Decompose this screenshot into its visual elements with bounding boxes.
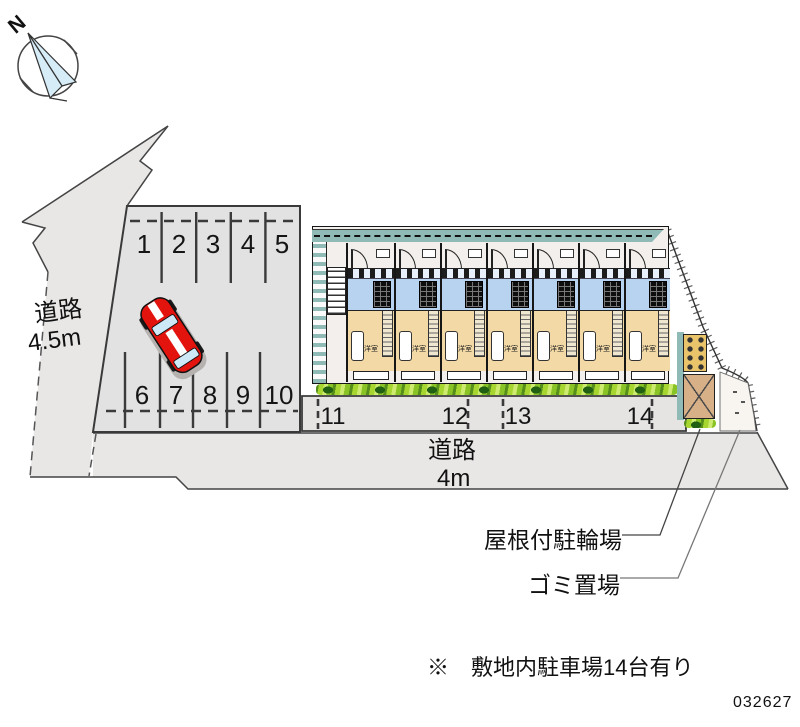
apartment-building: 洋室 洋室 洋室 洋室 xyxy=(312,226,670,384)
unit-kitchen-bath xyxy=(348,268,394,310)
apartment-unit: 洋室 xyxy=(578,243,624,382)
room-label: 洋室 xyxy=(550,344,564,354)
unit-balcony xyxy=(585,371,619,380)
unit-kitchen-bath xyxy=(534,268,578,310)
kitchen-counter xyxy=(396,269,440,279)
compass-icon: N xyxy=(4,11,78,101)
parking-space-number: 5 xyxy=(275,229,289,259)
unit-entrance xyxy=(626,243,670,268)
gravel-dot xyxy=(733,391,737,393)
entry-window xyxy=(514,249,528,258)
hedge xyxy=(316,384,678,395)
unit-living-room: 洋室 xyxy=(534,310,578,371)
parking-space-number: 8 xyxy=(203,380,217,410)
unit-stairs xyxy=(612,311,623,357)
room-label: 洋室 xyxy=(458,344,472,354)
unit-kitchen-bath xyxy=(396,268,440,310)
staircase xyxy=(327,267,346,315)
road-width: 4m xyxy=(437,465,476,493)
door-arc-icon xyxy=(583,249,600,269)
entry-window xyxy=(606,249,620,258)
parking-space-number: 6 xyxy=(135,380,149,410)
parking-space-number: 11 xyxy=(321,403,346,430)
room-label: 洋室 xyxy=(596,344,610,354)
apartment-unit: 洋室 xyxy=(486,243,532,382)
compass-base-line xyxy=(50,98,67,101)
road-label-bottom: 道路 4m xyxy=(428,437,476,492)
door-arc-icon xyxy=(351,249,368,269)
kitchen-counter xyxy=(534,269,578,279)
apartment-unit: 洋室 xyxy=(394,243,440,382)
room-label: 洋室 xyxy=(642,344,656,354)
building-body: 洋室 洋室 洋室 洋室 xyxy=(312,226,669,384)
entry-window xyxy=(422,249,436,258)
street-parking-strip: 11 12 13 14 xyxy=(302,396,686,431)
unit-bath-block xyxy=(557,281,575,308)
unit-entrance xyxy=(534,243,578,268)
parking-space-number: 14 xyxy=(627,403,654,430)
compass-tick-ne xyxy=(64,40,77,54)
unit-entrance xyxy=(580,243,624,268)
table-chairs xyxy=(537,331,550,361)
parking-space-number: 3 xyxy=(206,229,220,259)
parking-count-note: ※ 敷地内駐車場14台有り xyxy=(427,650,693,682)
garbage-area-outline xyxy=(720,372,756,431)
bicycle-rack xyxy=(683,334,707,372)
apartment-unit: 洋室 xyxy=(348,243,394,382)
unit-bath-block xyxy=(373,281,391,308)
units-row: 洋室 洋室 洋室 洋室 xyxy=(346,243,670,382)
label-bicycle-parking: 屋根付駐輪場 xyxy=(467,521,622,555)
parking-space-number: 10 xyxy=(265,380,294,410)
unit-kitchen-bath xyxy=(580,268,624,310)
table-chairs xyxy=(351,331,364,361)
room-label: 洋室 xyxy=(412,344,426,354)
parking-lot: 1 2 3 4 5 6 7 8 9 10 xyxy=(93,206,300,432)
unit-living-room: 洋室 xyxy=(348,310,394,371)
parking-space-number: 1 xyxy=(137,229,151,259)
unit-stairs xyxy=(658,311,669,357)
table-chairs xyxy=(629,331,642,361)
compass-tick-sw xyxy=(20,78,33,92)
unit-living-room: 洋室 xyxy=(396,310,440,371)
entry-window xyxy=(468,249,482,258)
entry-window xyxy=(560,249,574,258)
unit-bath-block xyxy=(465,281,483,308)
parking-space-number: 7 xyxy=(169,380,183,410)
unit-bath-block xyxy=(649,281,667,308)
room-label: 洋室 xyxy=(364,344,378,354)
parking-space-number: 13 xyxy=(505,403,532,430)
unit-bath-block xyxy=(419,281,437,308)
door-arc-icon xyxy=(399,249,416,269)
north-label: N xyxy=(4,11,30,38)
corridor-band xyxy=(312,229,664,242)
corridor-dashed-line xyxy=(314,235,652,237)
entry-window xyxy=(652,249,666,258)
site-plan-page: 1 2 3 4 5 6 7 8 9 10 11 12 13 xyxy=(0,0,800,727)
gravel-dot xyxy=(741,401,745,403)
room-label: 洋室 xyxy=(504,344,518,354)
unit-bath-block xyxy=(603,281,621,308)
unit-bath-block xyxy=(511,281,529,308)
kitchen-counter xyxy=(348,269,394,279)
kitchen-counter xyxy=(488,269,532,279)
bicycle-shed-roof xyxy=(683,374,715,419)
unit-stairs xyxy=(428,311,439,357)
unit-entrance xyxy=(348,243,394,268)
unit-stairs xyxy=(382,311,393,357)
entry-window xyxy=(376,249,390,258)
unit-living-room: 洋室 xyxy=(488,310,532,371)
parking-space-number: 9 xyxy=(236,380,250,410)
hedge xyxy=(684,419,716,428)
unit-kitchen-bath xyxy=(626,268,670,310)
door-arc-icon xyxy=(537,249,554,269)
parking-space-number: 12 xyxy=(442,403,469,430)
parking-space-number: 2 xyxy=(172,229,186,259)
unit-kitchen-bath xyxy=(442,268,486,310)
table-chairs xyxy=(445,331,458,361)
kitchen-counter xyxy=(442,269,486,279)
unit-stairs xyxy=(566,311,577,357)
unit-balcony xyxy=(631,371,665,380)
door-arc-icon xyxy=(445,249,462,269)
gravel-dot xyxy=(735,412,739,414)
unit-balcony xyxy=(447,371,481,380)
label-garbage: ゴミ置場 xyxy=(528,566,620,600)
table-chairs xyxy=(583,331,596,361)
garbage-area xyxy=(720,372,756,431)
parking-space-number: 4 xyxy=(241,229,255,259)
apartment-unit: 洋室 xyxy=(440,243,486,382)
unit-balcony xyxy=(493,371,527,380)
table-chairs xyxy=(491,331,504,361)
unit-living-room: 洋室 xyxy=(442,310,486,371)
road-label-left: 道路 4.5m xyxy=(33,295,87,356)
unit-stairs xyxy=(520,311,531,357)
unit-balcony xyxy=(539,371,573,380)
unit-balcony xyxy=(401,371,435,380)
door-arc-icon xyxy=(629,249,646,269)
kitchen-counter xyxy=(626,269,670,279)
plan-number: 032627 xyxy=(733,694,792,712)
door-arc-icon xyxy=(491,249,508,269)
table-chairs xyxy=(399,331,412,361)
kitchen-counter xyxy=(580,269,624,279)
road-name: 道路 xyxy=(428,437,476,465)
unit-balcony xyxy=(353,371,389,380)
unit-kitchen-bath xyxy=(488,268,532,310)
unit-entrance xyxy=(396,243,440,268)
apartment-unit: 洋室 xyxy=(624,243,670,382)
unit-living-room: 洋室 xyxy=(580,310,624,371)
unit-stairs xyxy=(474,311,485,357)
unit-entrance xyxy=(488,243,532,268)
external-stairs-strip xyxy=(313,241,327,383)
apartment-unit: 洋室 xyxy=(532,243,578,382)
unit-living-room: 洋室 xyxy=(626,310,670,371)
unit-entrance xyxy=(442,243,486,268)
